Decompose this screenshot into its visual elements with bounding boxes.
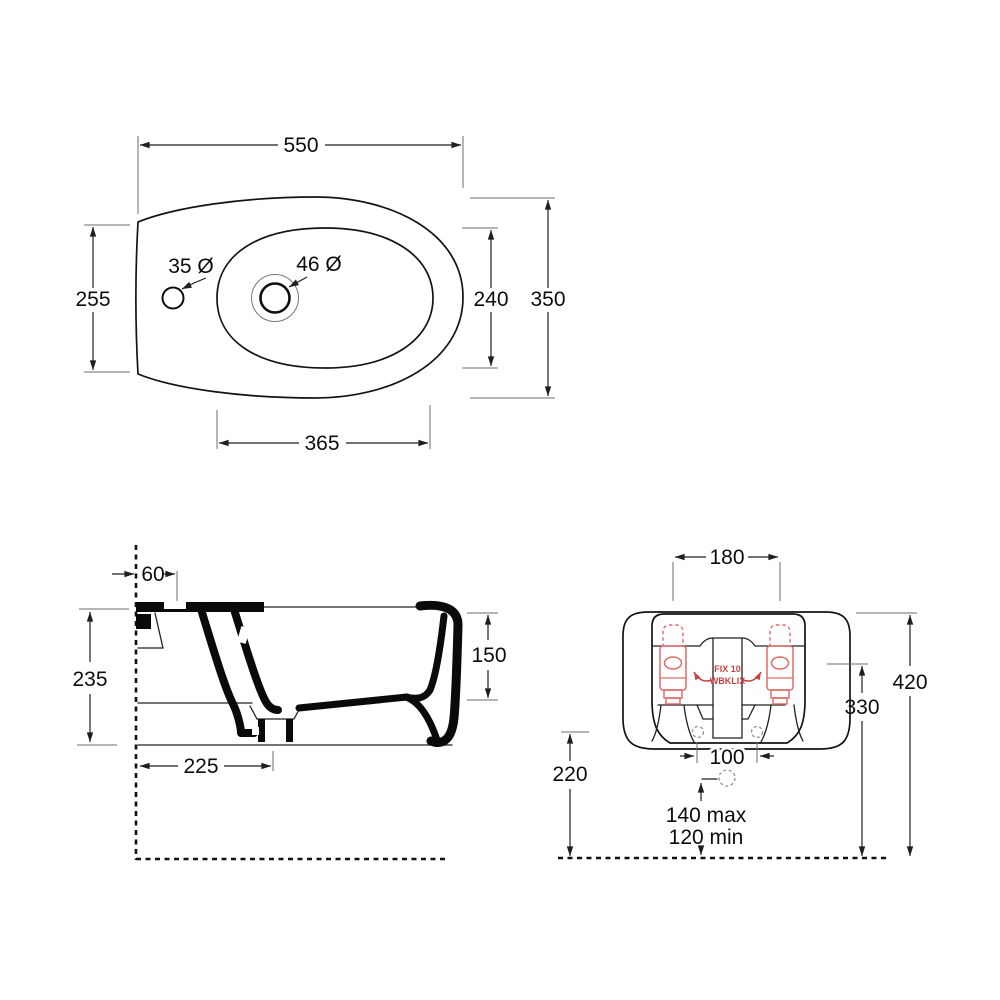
dim-fixing-hole-centres-100: 100 — [680, 742, 774, 769]
label-supply-min: 120 min — [669, 826, 744, 849]
svg-text:330: 330 — [844, 696, 879, 719]
svg-text:365: 365 — [304, 432, 339, 455]
dim-bowl-width-365: 365 — [217, 405, 430, 455]
leg-left-outer — [652, 705, 661, 741]
drain-hole-46 — [261, 284, 290, 313]
fixing-bracket-right — [767, 625, 793, 704]
rim-corner-block — [136, 614, 151, 629]
dim-hole-offset-60: 60 — [112, 563, 177, 601]
technical-drawing-sheet: 35 Ø 46 Ø 550 350 240 — [0, 0, 1000, 1000]
top-view: 35 Ø 46 Ø 550 350 240 — [75, 134, 565, 455]
fixing-hole-left — [693, 727, 704, 738]
drain-pipe-right-wall — [286, 719, 293, 742]
supply-hole — [719, 770, 735, 786]
drain-notch — [252, 727, 259, 735]
dim-drain-distance-225: 225 — [140, 751, 273, 778]
svg-text:60: 60 — [141, 563, 164, 586]
label-tap-hole-diameter: 35 Ø — [168, 255, 214, 278]
central-channel — [713, 638, 742, 738]
fixing-kit-label-line1: FIX 10 — [714, 664, 741, 674]
dim-overall-height-420: 420 — [856, 613, 928, 856]
svg-text:255: 255 — [75, 288, 110, 311]
drain-hole-trim — [252, 275, 299, 322]
fixing-bracket-left — [660, 625, 686, 704]
svg-text:150: 150 — [471, 644, 506, 667]
svg-text:350: 350 — [530, 288, 565, 311]
tap-hole-35 — [163, 288, 184, 309]
drain-pipe-left-wall — [258, 719, 265, 742]
side-splash-diagonal — [155, 613, 163, 648]
basin-floor-line — [299, 697, 407, 708]
dim-inner-depth-150: 150 — [467, 613, 507, 700]
rim-hole-gap — [164, 602, 186, 609]
bowl-front-wall-inner — [233, 606, 278, 710]
side-section-view: 60 235 150 225 — [72, 545, 506, 860]
bidet-drawing-svg: 35 Ø 46 Ø 550 350 240 — [0, 0, 1000, 1000]
platform-line — [652, 638, 805, 646]
fixing-arrow-right — [743, 672, 761, 681]
top-view-inner-rim — [217, 228, 433, 368]
svg-text:240: 240 — [473, 288, 508, 311]
svg-text:420: 420 — [892, 671, 927, 694]
dim-fixing-hole-height-220: 220 — [552, 732, 589, 856]
dim-body-height-235: 235 — [72, 609, 129, 745]
leader-35 — [182, 278, 206, 289]
dim-bracket-height-330: 330 — [827, 664, 880, 856]
leg-right-inner — [761, 705, 771, 742]
svg-text:235: 235 — [72, 668, 107, 691]
rear-wall-outer — [420, 605, 458, 742]
supply-connection: 140 max 120 min — [666, 770, 747, 855]
svg-text:225: 225 — [183, 755, 218, 778]
svg-text:100: 100 — [709, 746, 744, 769]
top-view-outer-outline — [136, 197, 463, 398]
svg-text:550: 550 — [283, 134, 318, 157]
dim-bowl-depth-240: 240 — [462, 228, 509, 368]
rear-wall-inner — [406, 616, 444, 698]
leg-left-inner — [684, 705, 694, 742]
dim-left-depth-255: 255 — [75, 225, 130, 372]
label-supply-max: 140 max — [666, 804, 747, 827]
drain-step-left — [697, 705, 713, 719]
rear-wall-lower-branch — [406, 697, 437, 740]
bowl-front-wall-outer — [200, 606, 254, 733]
dim-bracket-centres-180: 180 — [673, 546, 780, 601]
svg-text:180: 180 — [709, 546, 744, 569]
svg-text:220: 220 — [552, 763, 587, 786]
rear-view: FIX 10 WBKLIX 180 420 330 — [552, 546, 927, 858]
fixing-hole-right — [752, 727, 763, 738]
drain-step-right — [742, 705, 755, 719]
label-drain-hole-diameter: 46 Ø — [296, 253, 342, 276]
fixing-kit-label-line2: WBKLIX — [710, 676, 746, 686]
dim-overall-width-550: 550 — [138, 134, 463, 214]
